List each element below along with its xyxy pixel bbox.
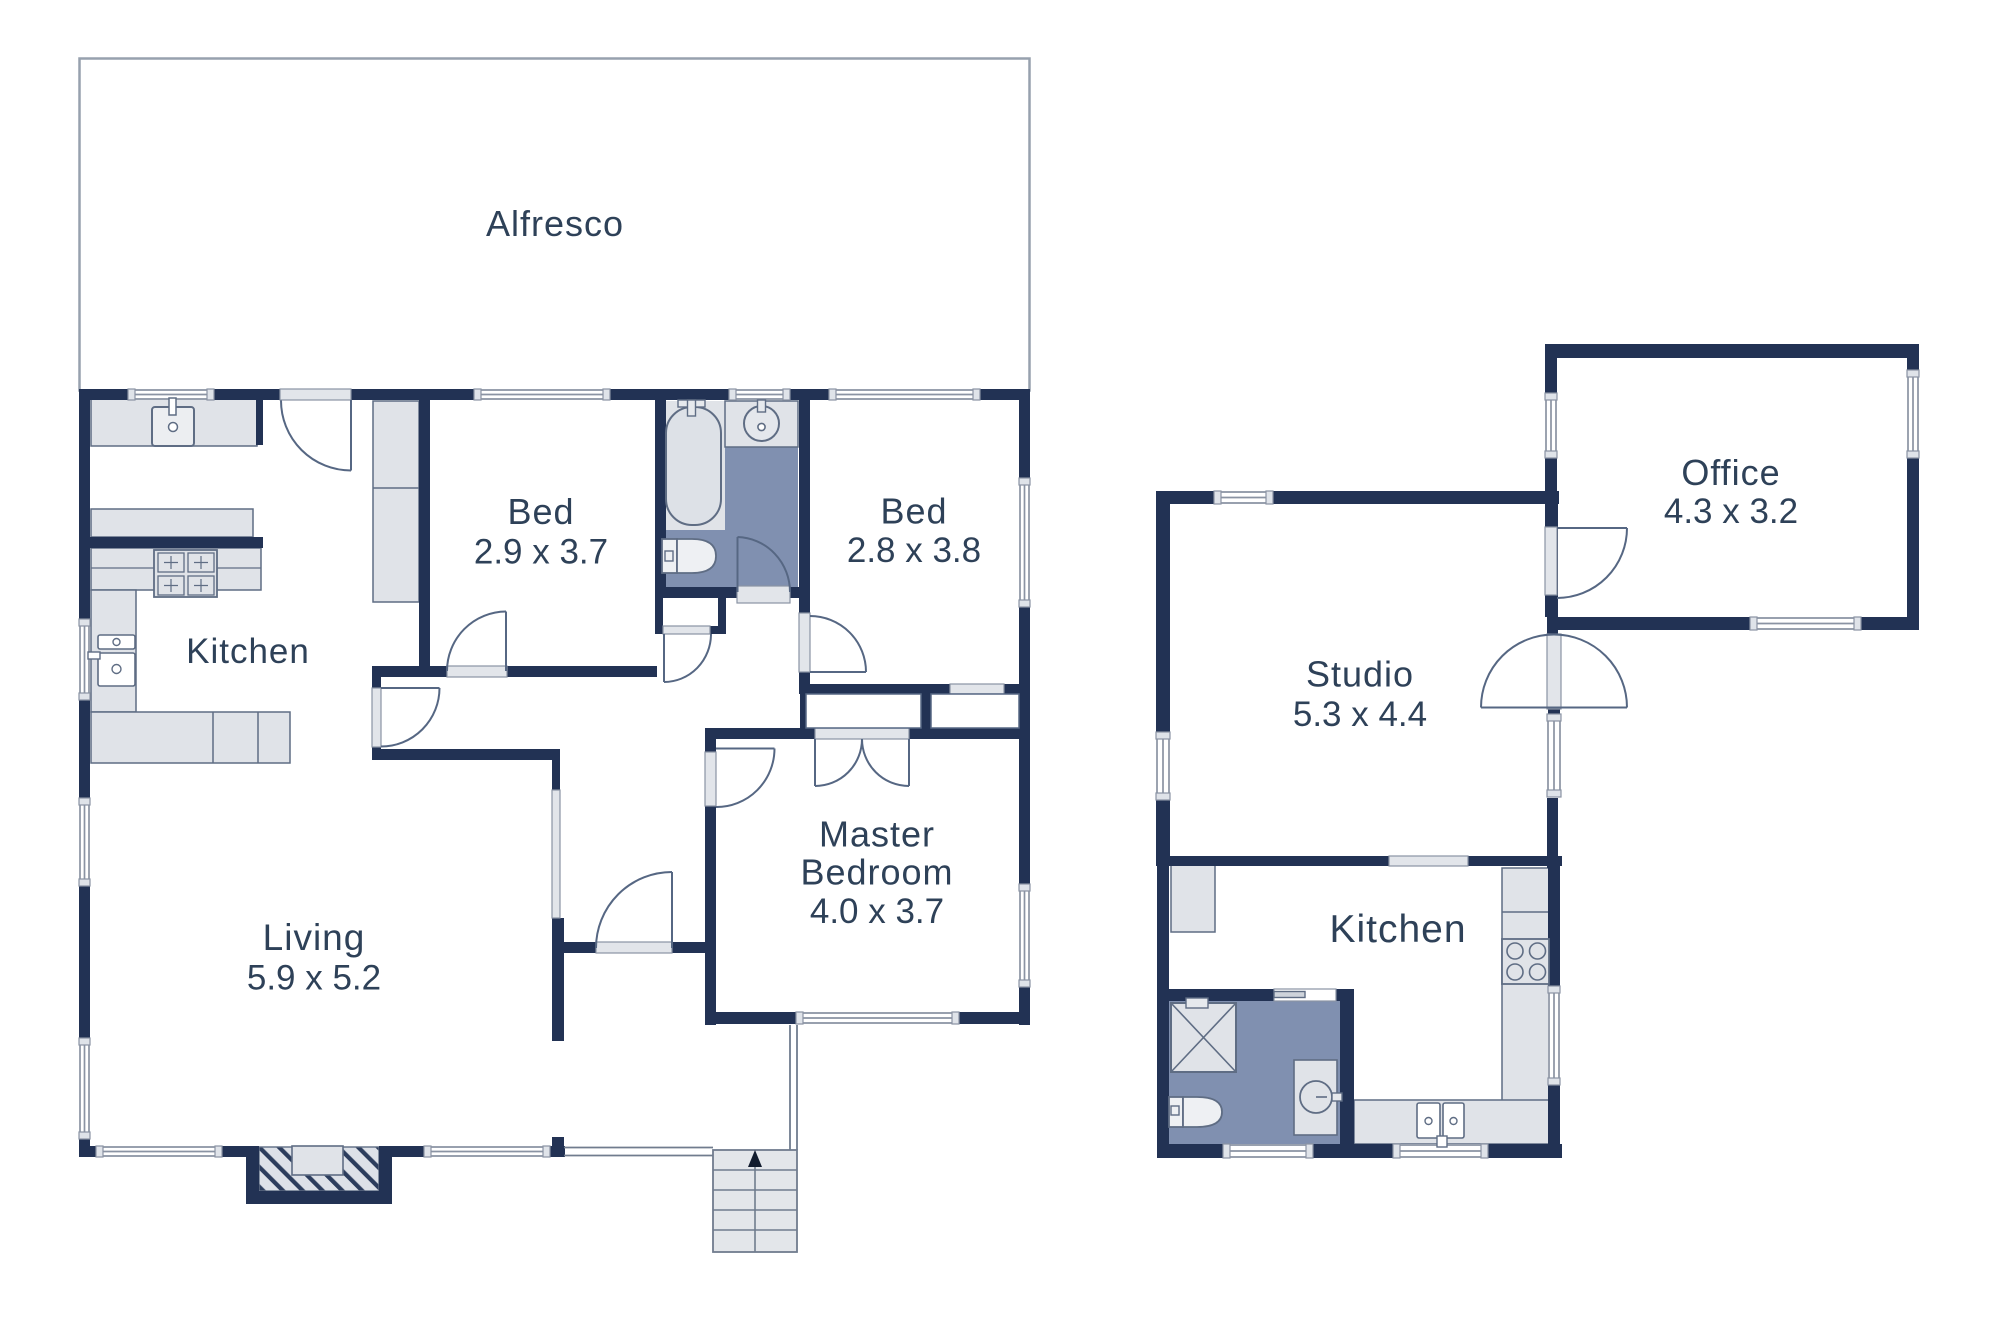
svg-text:2.8 x 3.8: 2.8 x 3.8 bbox=[847, 531, 981, 570]
svg-text:5.9 x 5.2: 5.9 x 5.2 bbox=[247, 959, 381, 998]
svg-text:Office: Office bbox=[1681, 452, 1780, 493]
svg-text:4.3 x 3.2: 4.3 x 3.2 bbox=[1664, 492, 1798, 531]
svg-text:Bed: Bed bbox=[507, 491, 574, 532]
svg-text:Living: Living bbox=[263, 917, 366, 958]
svg-text:Bedroom: Bedroom bbox=[800, 852, 953, 893]
svg-text:Studio: Studio bbox=[1306, 654, 1414, 695]
svg-text:Master: Master bbox=[819, 814, 935, 855]
svg-text:2.9 x 3.7: 2.9 x 3.7 bbox=[474, 533, 608, 572]
svg-text:Kitchen: Kitchen bbox=[186, 632, 310, 671]
svg-text:Alfresco: Alfresco bbox=[486, 203, 624, 244]
svg-text:4.0 x 3.7: 4.0 x 3.7 bbox=[810, 892, 944, 931]
svg-text:5.3 x 4.4: 5.3 x 4.4 bbox=[1293, 695, 1427, 734]
svg-text:Bed: Bed bbox=[880, 491, 947, 532]
svg-text:Kitchen: Kitchen bbox=[1329, 908, 1466, 951]
